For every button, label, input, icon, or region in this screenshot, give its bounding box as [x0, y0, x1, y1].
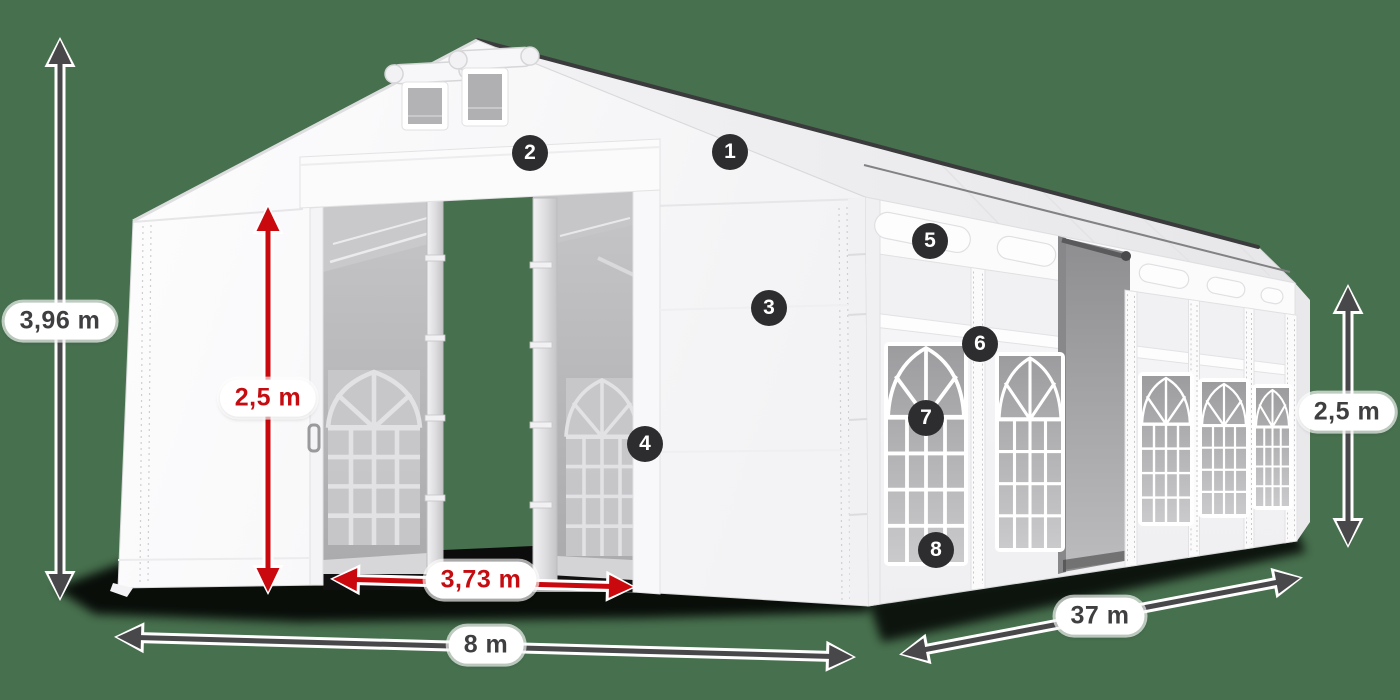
callout-badge-6[interactable]: 6	[962, 326, 998, 362]
front-corner-strip	[848, 197, 868, 606]
interior-window-print	[328, 370, 420, 545]
callout-badge-3[interactable]: 3	[751, 290, 787, 326]
dimension-label-entrance-height: 2,5 m	[220, 380, 316, 417]
dimension-label-total-height: 3,96 m	[5, 303, 116, 340]
dimension-label-tent-width: 8 m	[449, 627, 524, 664]
side-window	[1198, 378, 1250, 518]
side-window	[884, 342, 968, 566]
tent-illustration	[0, 0, 1400, 700]
callout-badge-4[interactable]: 4	[627, 426, 663, 462]
callout-badge-7[interactable]: 7	[908, 400, 944, 436]
callout-badge-5[interactable]: 5	[912, 223, 948, 259]
tent-diagram: 3,96 m 2,5 m 3,73 m 8 m 37 m 2,5 m 1 2 3…	[0, 0, 1400, 700]
entrance-pole-right	[530, 198, 557, 590]
entrance-pole-left	[425, 196, 445, 588]
entrance-interior	[323, 190, 640, 592]
entrance-right-post	[633, 189, 660, 594]
side-window	[1138, 372, 1194, 526]
dimension-label-tent-length: 37 m	[1056, 598, 1145, 635]
interior-window-print	[566, 378, 638, 556]
pass-through-opening	[443, 192, 533, 552]
side-entrance-opening	[1058, 236, 1131, 574]
callout-badge-1[interactable]: 1	[712, 134, 748, 170]
side-window	[995, 352, 1065, 552]
side-window	[1252, 384, 1293, 510]
callout-badge-8[interactable]: 8	[918, 532, 954, 568]
dimension-label-entrance-width: 3,73 m	[426, 562, 537, 599]
callout-badge-2[interactable]: 2	[512, 135, 548, 171]
dimension-label-side-wall-height: 2,5 m	[1299, 394, 1395, 431]
side-wall-post	[1125, 290, 1137, 567]
